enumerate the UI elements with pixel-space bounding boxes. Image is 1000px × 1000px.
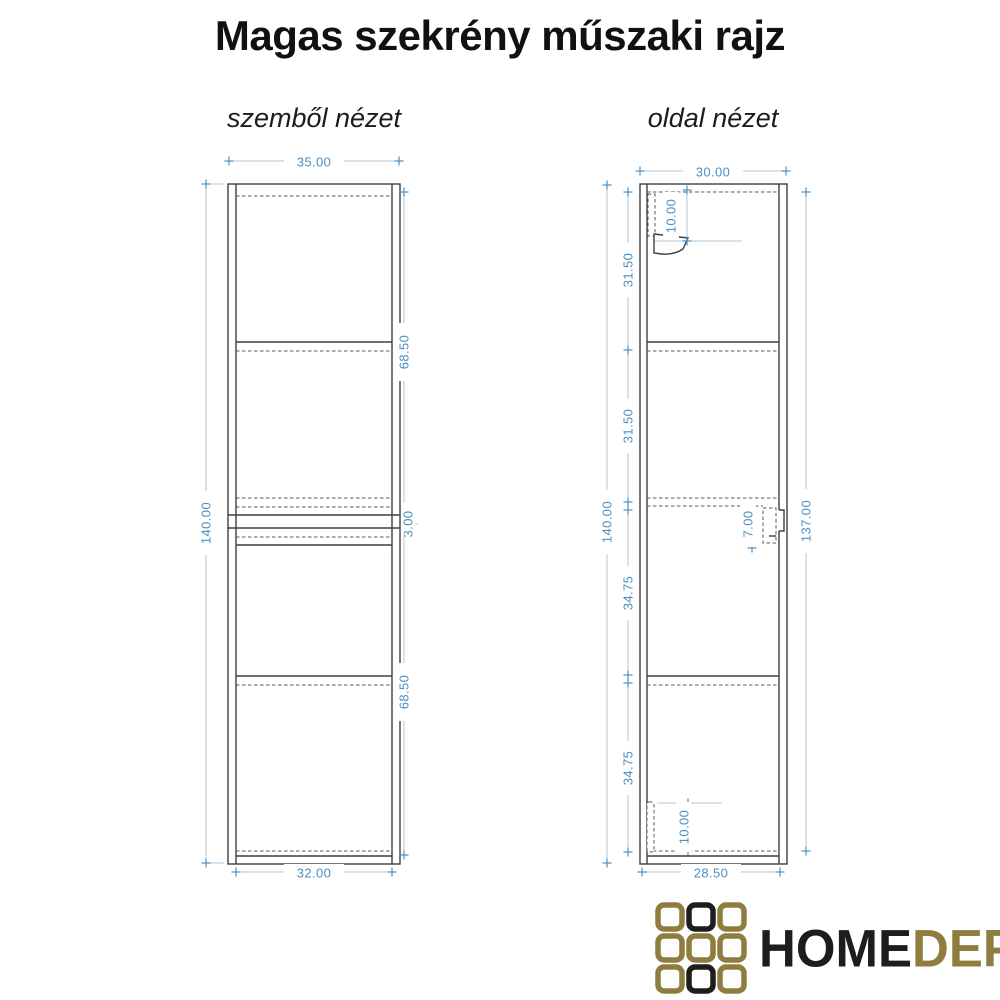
logo-grid-cell: [658, 967, 682, 991]
logo-grid-cell: [658, 936, 682, 960]
front-dim-inner-width: 32.00: [232, 864, 397, 881]
logo-grid-cell: [658, 905, 682, 929]
front-outer-width-value: 35.00: [297, 155, 332, 170]
front-lower-section-value: 68.50: [397, 675, 412, 710]
front-dim-middle-gap: 3.00: [400, 503, 419, 545]
homedepo-logo-text: HOMEDEPO: [759, 922, 1000, 975]
side-dim-height: 140.00: [599, 181, 615, 868]
side-height-value: 140.00: [600, 501, 615, 543]
front-height-value: 140.00: [199, 502, 214, 544]
logo-text-depo: DEPO: [912, 919, 1000, 978]
front-dim-height: 140.00: [198, 180, 224, 868]
side-inner-depth-value: 28.50: [694, 866, 729, 881]
technical-drawing-page: Magas szekrény műszaki rajz szemből néze…: [0, 0, 1000, 1000]
side-dim-handle-recess: 7.00: [740, 501, 757, 553]
side-bottom-bracket: [647, 802, 654, 852]
front-view-drawing: [228, 184, 400, 864]
side-second-section-value: 31.50: [621, 409, 636, 444]
side-top-bracket-value: 10.00: [664, 199, 679, 234]
logo-grid-cell: [689, 967, 713, 991]
side-top-section-value: 31.50: [621, 253, 636, 288]
logo-grid-cell: [720, 905, 744, 929]
side-dim-sections: 31.50 31.50 34.75 34.75: [620, 188, 636, 857]
side-bottom-bracket-value: 10.00: [677, 810, 692, 845]
logo-grid-cell: [720, 967, 744, 991]
homedepo-logo-grid-icon: [654, 901, 749, 996]
side-door-height-value: 137.00: [799, 500, 814, 542]
homedepo-logo: HOMEDEPO: [654, 901, 1000, 996]
side-third-section-value: 34.75: [621, 576, 636, 611]
side-bottom-section-value: 34.75: [621, 751, 636, 786]
side-dim-outer-depth: 30.00: [636, 163, 791, 180]
side-mid-bracket: [763, 508, 776, 543]
logo-grid-cell: [720, 936, 744, 960]
front-upper-section-value: 68.50: [397, 335, 412, 370]
logo-grid-cell: [689, 905, 713, 929]
front-middle-gap-value: 3.00: [401, 511, 416, 538]
front-dim-outer-width: 35.00: [225, 153, 404, 170]
side-dim-inner-depth: 28.50: [638, 864, 785, 881]
front-inner-width-value: 32.00: [297, 866, 332, 881]
front-cabinet-outline: [228, 184, 400, 864]
cabinet-technical-drawing: 35.00 140.00 68.50 3.00 68.: [0, 0, 1000, 1000]
side-outer-depth-value: 30.00: [696, 165, 731, 180]
logo-text-home: HOME: [759, 919, 912, 978]
side-handle-recess-value: 7.00: [741, 511, 756, 538]
logo-grid-cell: [689, 936, 713, 960]
side-view-drawing: [640, 184, 787, 864]
side-dim-door-height: 137.00: [798, 188, 814, 856]
